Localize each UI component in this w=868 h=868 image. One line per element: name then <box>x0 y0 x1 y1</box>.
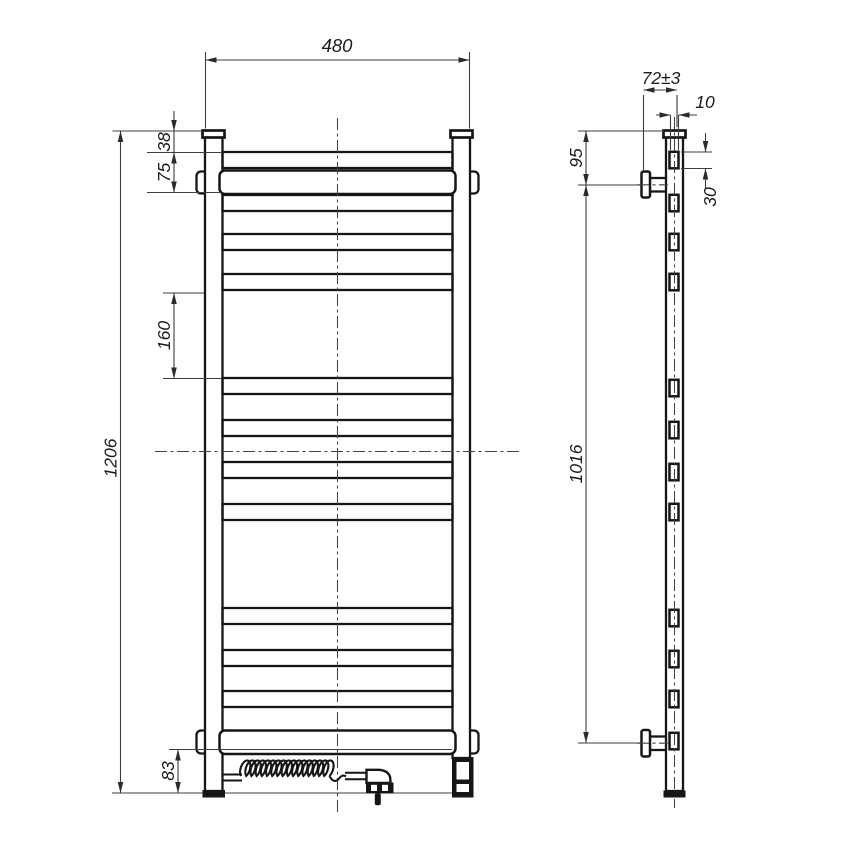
post-left <box>205 131 223 791</box>
electrical-and-feet <box>203 757 686 805</box>
dim-label-wall-offset: 72±3 <box>642 68 681 88</box>
plug-pin <box>375 793 381 805</box>
side-cap-bottom <box>664 791 686 798</box>
cap-top-left <box>203 131 225 138</box>
side-view <box>637 117 686 808</box>
dimensions-front: 480 38 75 160 1206 83 <box>101 35 470 793</box>
dim-label-rung-face-height: 30 <box>700 187 720 207</box>
post-right <box>453 131 471 758</box>
cap-top-right <box>451 131 473 138</box>
heating-element-housing <box>452 757 474 798</box>
technical-drawing: 480 38 75 160 1206 83 72±3 <box>0 0 868 868</box>
dim-label-bottom-clearance: 83 <box>158 761 178 781</box>
dim-label-top-offset: 38 <box>154 132 174 152</box>
foot-left <box>203 790 226 798</box>
dimensions-side: 72±3 10 95 1016 30 <box>566 68 720 743</box>
cable-coil <box>240 760 334 776</box>
front-view <box>155 118 521 812</box>
power-cable <box>223 760 369 781</box>
dim-label-top-to-bracket: 95 <box>566 148 586 168</box>
dim-label-section-gap: 160 <box>154 321 174 350</box>
dim-label-overall-height: 1206 <box>101 438 121 477</box>
drawing-canvas: 480 38 75 160 1206 83 72±3 <box>0 0 868 868</box>
dim-label-overall-width: 480 <box>322 35 354 56</box>
power-plug <box>366 770 394 806</box>
dim-label-bracket-spacing: 1016 <box>566 444 586 483</box>
dim-label-rung-depth: 10 <box>695 92 715 112</box>
dim-label-rung-pitch: 75 <box>154 163 174 183</box>
